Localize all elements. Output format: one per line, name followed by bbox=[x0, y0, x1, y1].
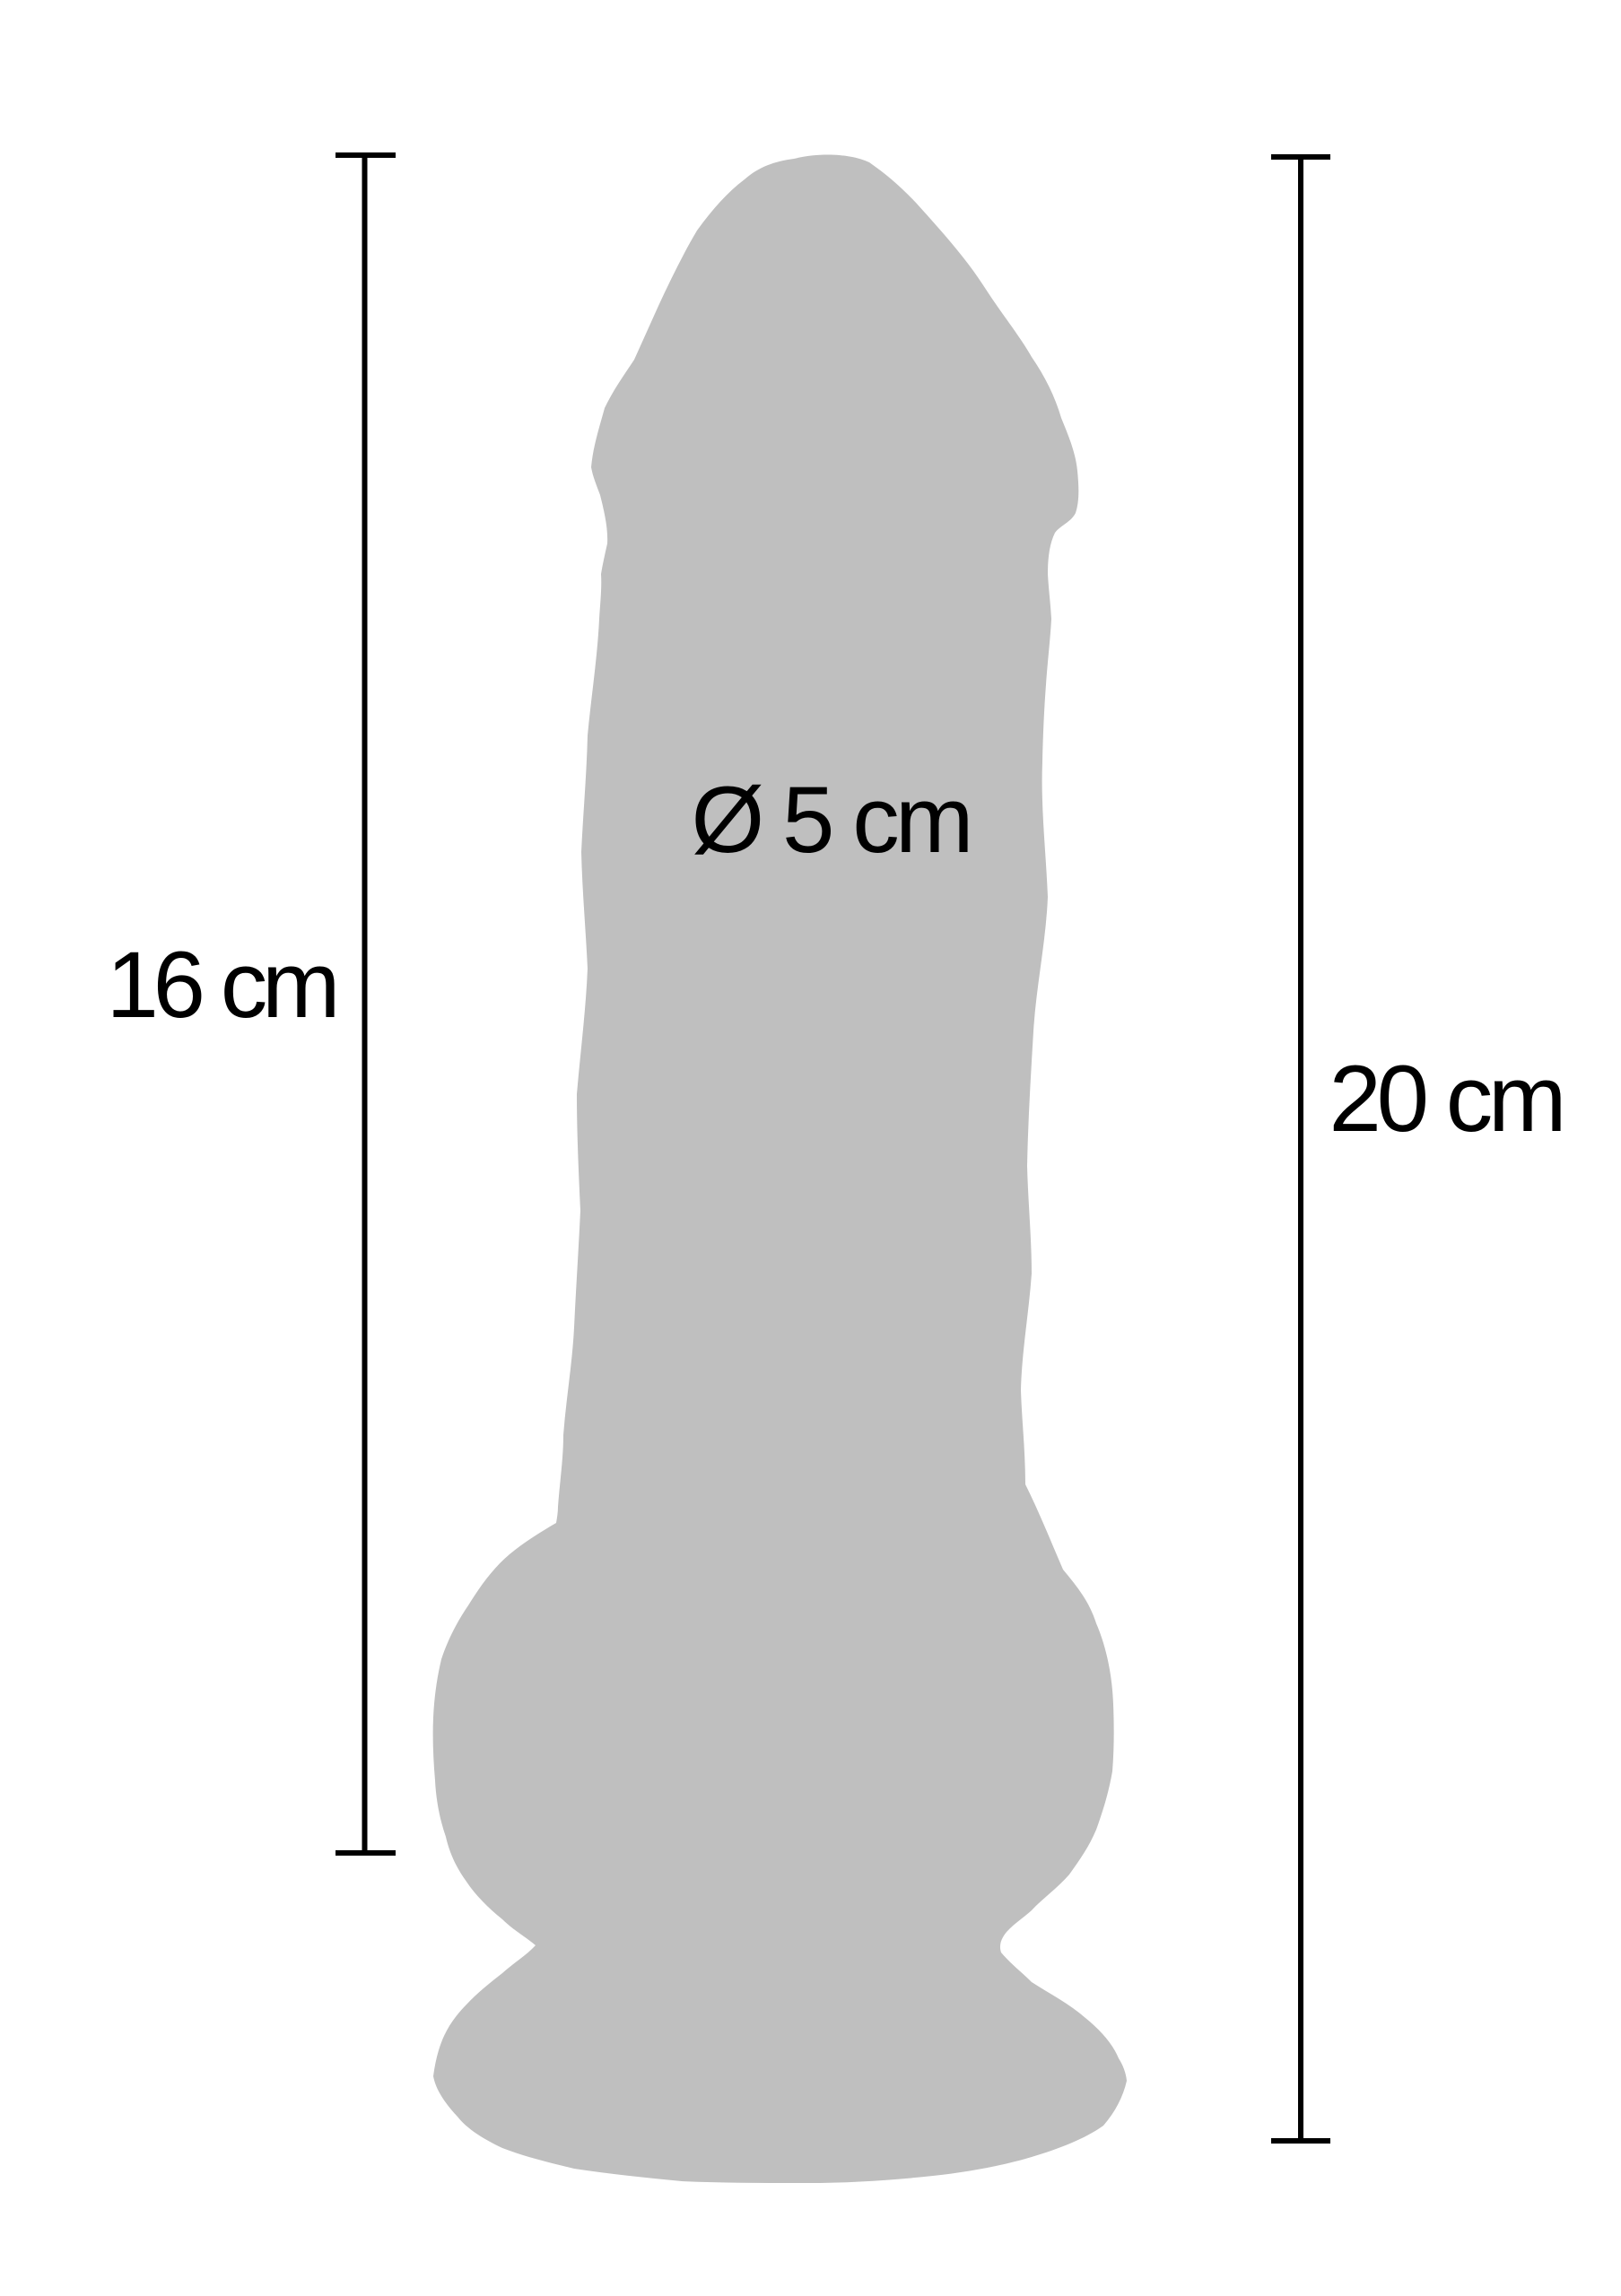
svg-text:20 cm: 20 cm bbox=[1329, 1047, 1567, 1152]
svg-text:16 cm: 16 cm bbox=[107, 933, 341, 1038]
svg-text:Ø 5 cm: Ø 5 cm bbox=[692, 768, 974, 873]
